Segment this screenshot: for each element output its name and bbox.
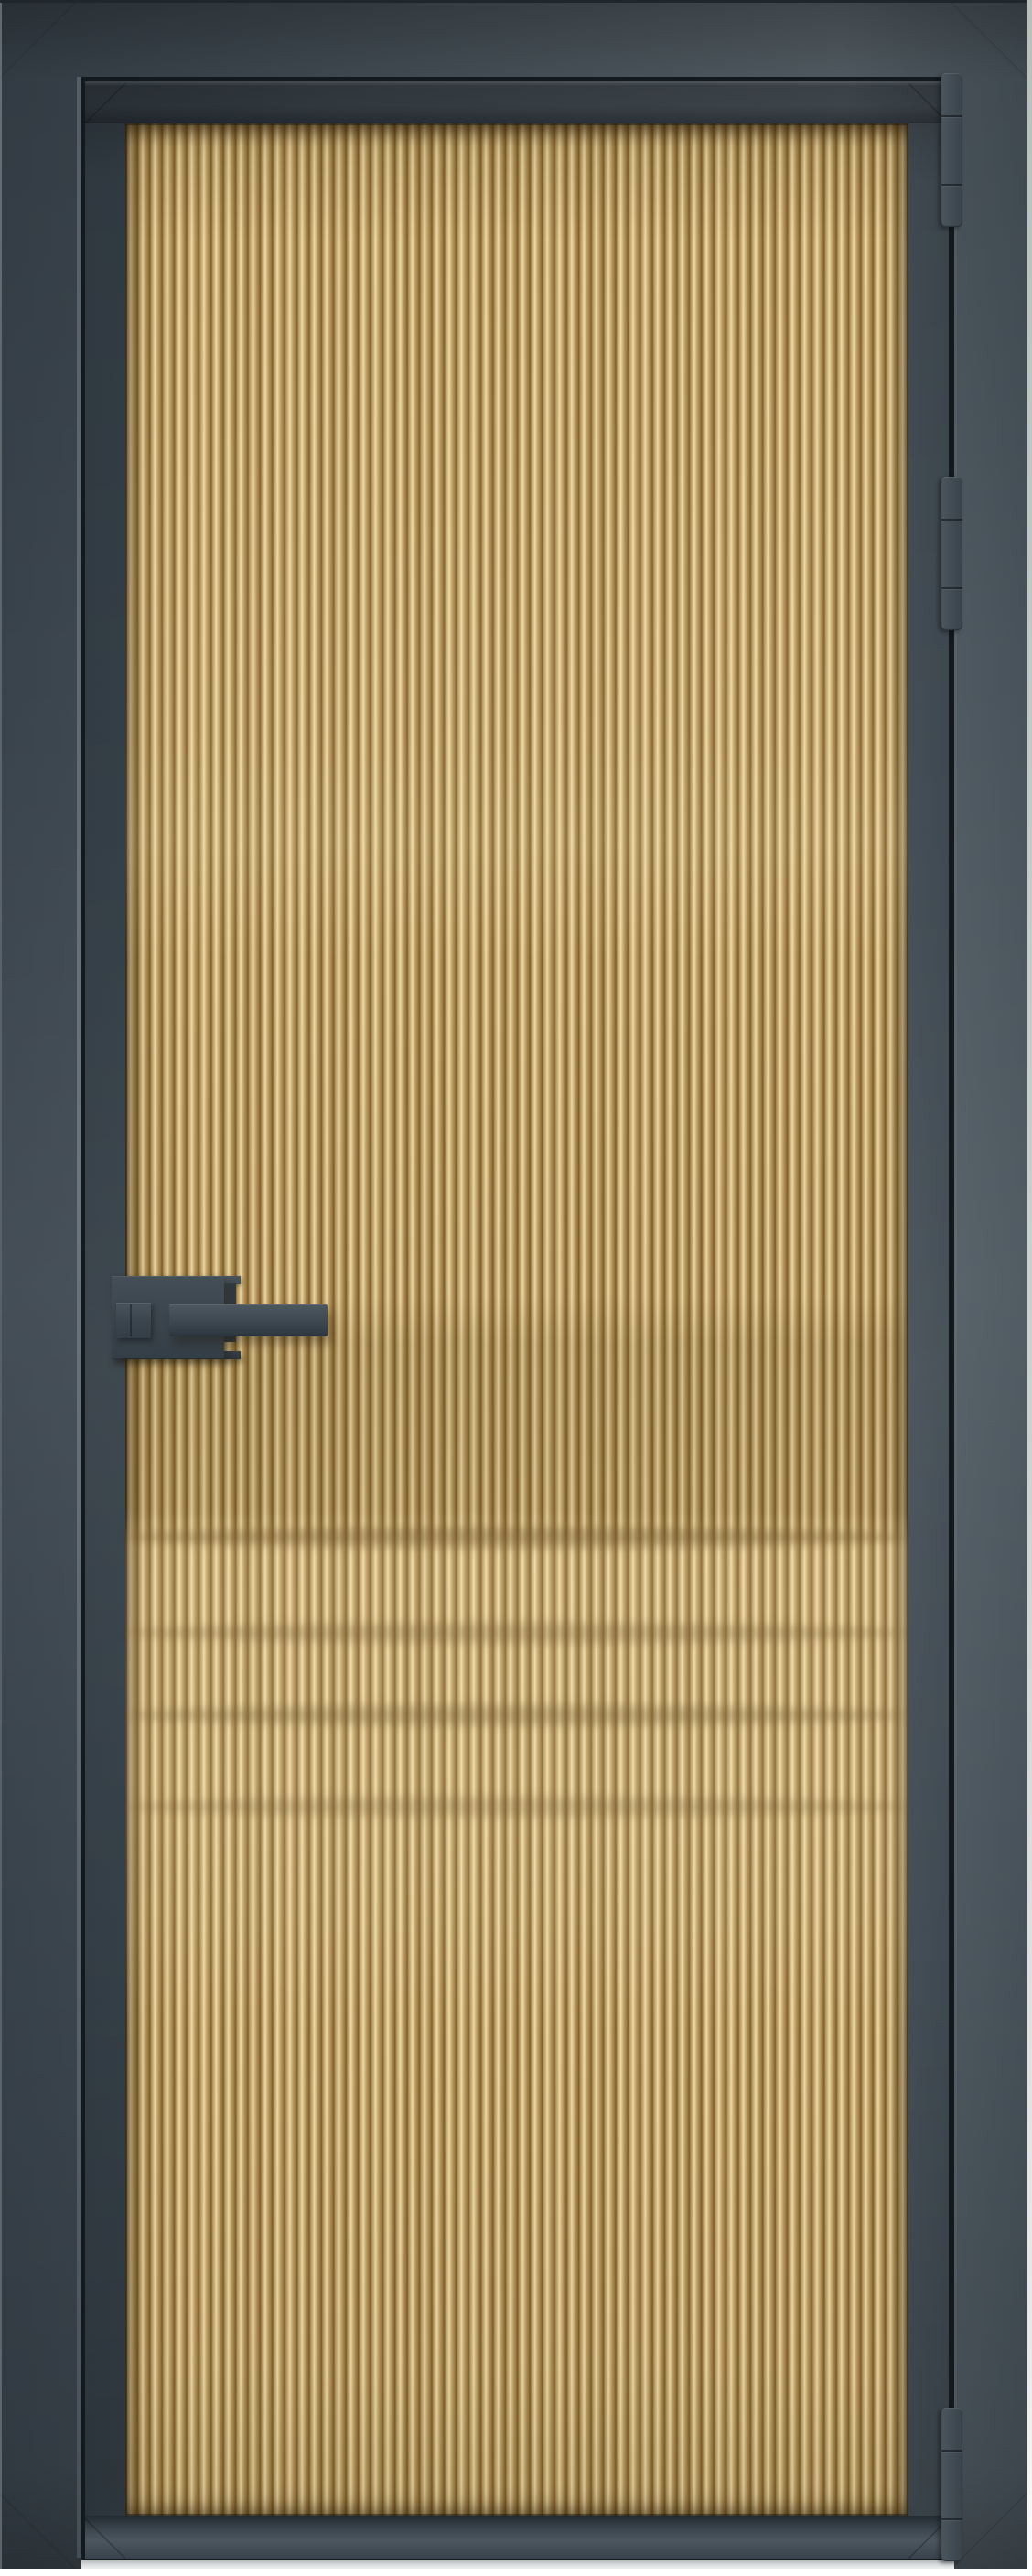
photo-right-edge bbox=[1027, 0, 1032, 2576]
casing-miter-top-left bbox=[0, 3, 75, 78]
glass-reflection-band bbox=[125, 1528, 908, 1548]
leaf-top-rail bbox=[85, 83, 949, 123]
casing-miter-bottom-right bbox=[951, 2494, 1027, 2569]
floor-strip bbox=[0, 2569, 1032, 2576]
casing-miter-top-right bbox=[951, 3, 1027, 78]
leaf-bottom-rail bbox=[85, 2516, 949, 2559]
casing-miter-bottom-left bbox=[0, 2494, 75, 2569]
glass-reflection-band bbox=[125, 1623, 908, 1643]
handle-lever bbox=[169, 1304, 328, 1336]
photo-left-edge bbox=[0, 3, 2, 2569]
photo-top-edge bbox=[0, 0, 1027, 3]
glass-reflection-band bbox=[125, 1797, 908, 1817]
glass-reflection-band bbox=[125, 1705, 908, 1725]
door-product-photo bbox=[0, 0, 1032, 2576]
casing-inner-edge bbox=[954, 77, 957, 2516]
hinge-top bbox=[941, 73, 962, 227]
hinge-bottom bbox=[941, 2408, 962, 2561]
hinge-upper bbox=[941, 477, 962, 630]
handle-lock-block bbox=[116, 1303, 151, 1338]
